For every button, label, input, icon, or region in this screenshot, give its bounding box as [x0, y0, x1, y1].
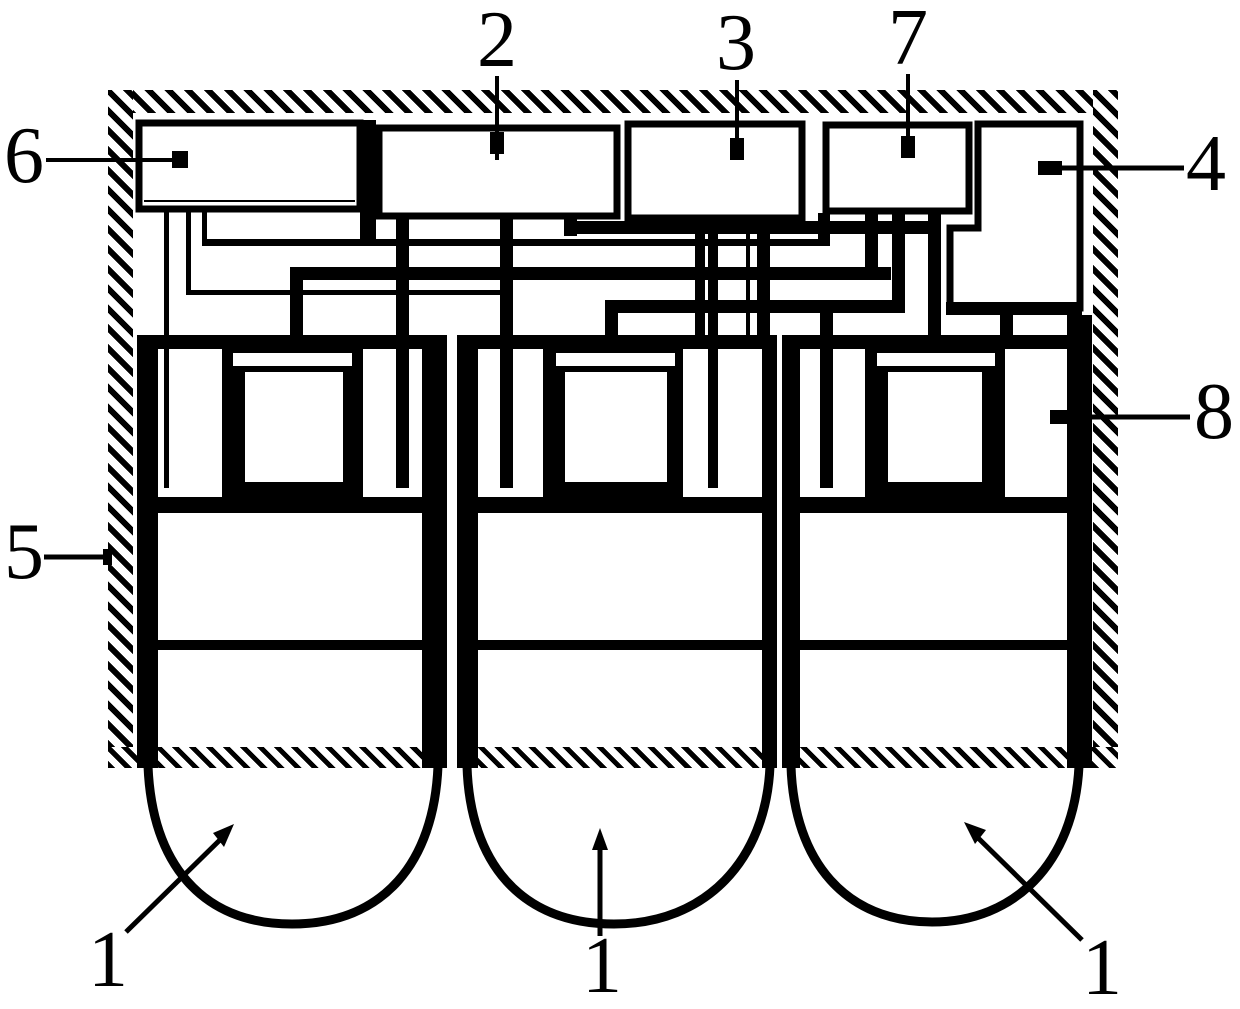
wire-7-drop-b — [928, 211, 941, 342]
cell-a-gate-core — [245, 372, 343, 482]
patent-figure-canvas: 6 2 3 7 4 5 8 1 1 1 — [0, 0, 1240, 1009]
cell-b-gate-slot — [556, 353, 675, 366]
bus-h2 — [564, 221, 941, 234]
region-4-bottom-bar — [946, 302, 1082, 315]
block-3-outline — [628, 124, 802, 218]
wire-thin-mid — [746, 222, 750, 338]
cell-b-gate-core — [565, 372, 667, 482]
trench-2-left-wall — [762, 335, 777, 768]
cell-a-gate-slot — [233, 353, 352, 366]
bus-h3-left-drop — [290, 267, 303, 342]
label-7: 7 — [888, 0, 928, 78]
leader-6-tip — [172, 151, 188, 168]
wire-6-bus-b — [186, 290, 508, 295]
label-1-right: 1 — [1082, 928, 1122, 1008]
trench-1-left-wall — [422, 335, 447, 768]
leader-1-left — [126, 834, 226, 932]
mesa-a-divider — [158, 640, 422, 650]
device-right-wall — [1067, 315, 1092, 768]
device-left-wall — [137, 335, 158, 768]
label-8: 8 — [1194, 372, 1234, 452]
wire-2-drop-left — [396, 214, 409, 488]
wire-7-drop-a — [892, 211, 905, 308]
leader-3-tip — [730, 138, 744, 160]
leader-2-tip — [490, 132, 504, 154]
cell-c-bottom-bar — [782, 497, 1092, 513]
mesa-c-divider — [800, 640, 1067, 650]
trench-2-right-wall — [782, 335, 800, 768]
wire-cellc-drop — [820, 306, 833, 488]
u-well-left — [148, 766, 438, 924]
wire-3-drop-b — [708, 218, 718, 488]
leader-7-tip — [901, 136, 915, 158]
mesa-b-divider — [478, 640, 762, 650]
leader-1-middle-arrowhead — [592, 828, 608, 850]
diagram-ink-layer — [0, 0, 1240, 1009]
trench-1-channel-gap — [447, 745, 457, 768]
leader-1-right — [972, 832, 1082, 940]
wire-3-drop-c — [757, 218, 770, 342]
label-2: 2 — [477, 0, 517, 80]
trench-1-right-wall — [457, 335, 478, 768]
block-separator-bar — [360, 120, 376, 245]
cell-b-top-bar — [458, 335, 762, 349]
cell-a-top-bar — [137, 335, 447, 349]
u-well-right — [791, 766, 1079, 922]
wire-6-bus-c — [202, 239, 830, 246]
leader-8-tip — [1050, 410, 1072, 424]
trench-2-channel-gap — [777, 745, 782, 768]
u-well-middle — [467, 766, 770, 924]
cell-c-gate-slot — [877, 353, 995, 366]
cell-c-top-bar — [782, 335, 1092, 349]
label-1-middle: 1 — [582, 926, 622, 1006]
label-3: 3 — [716, 3, 756, 83]
wire-2-drop-right — [500, 214, 513, 488]
block-7-outline — [826, 125, 969, 211]
label-5: 5 — [4, 512, 44, 592]
leader-5-tip — [103, 549, 112, 565]
cell-c-gate-core — [888, 372, 982, 482]
label-4: 4 — [1186, 124, 1226, 204]
bus-h5 — [605, 300, 905, 313]
leader-4-tip — [1038, 161, 1062, 175]
label-6: 6 — [4, 116, 44, 196]
label-1-left: 1 — [88, 920, 128, 1000]
wire-3-drop-a — [695, 218, 705, 342]
wire-riser-to-7b — [865, 211, 878, 280]
bus-h3 — [290, 267, 891, 280]
cell-b-bottom-bar — [458, 497, 762, 513]
cell-a-bottom-bar — [137, 497, 447, 513]
wire-6-drop-b — [186, 209, 191, 294]
